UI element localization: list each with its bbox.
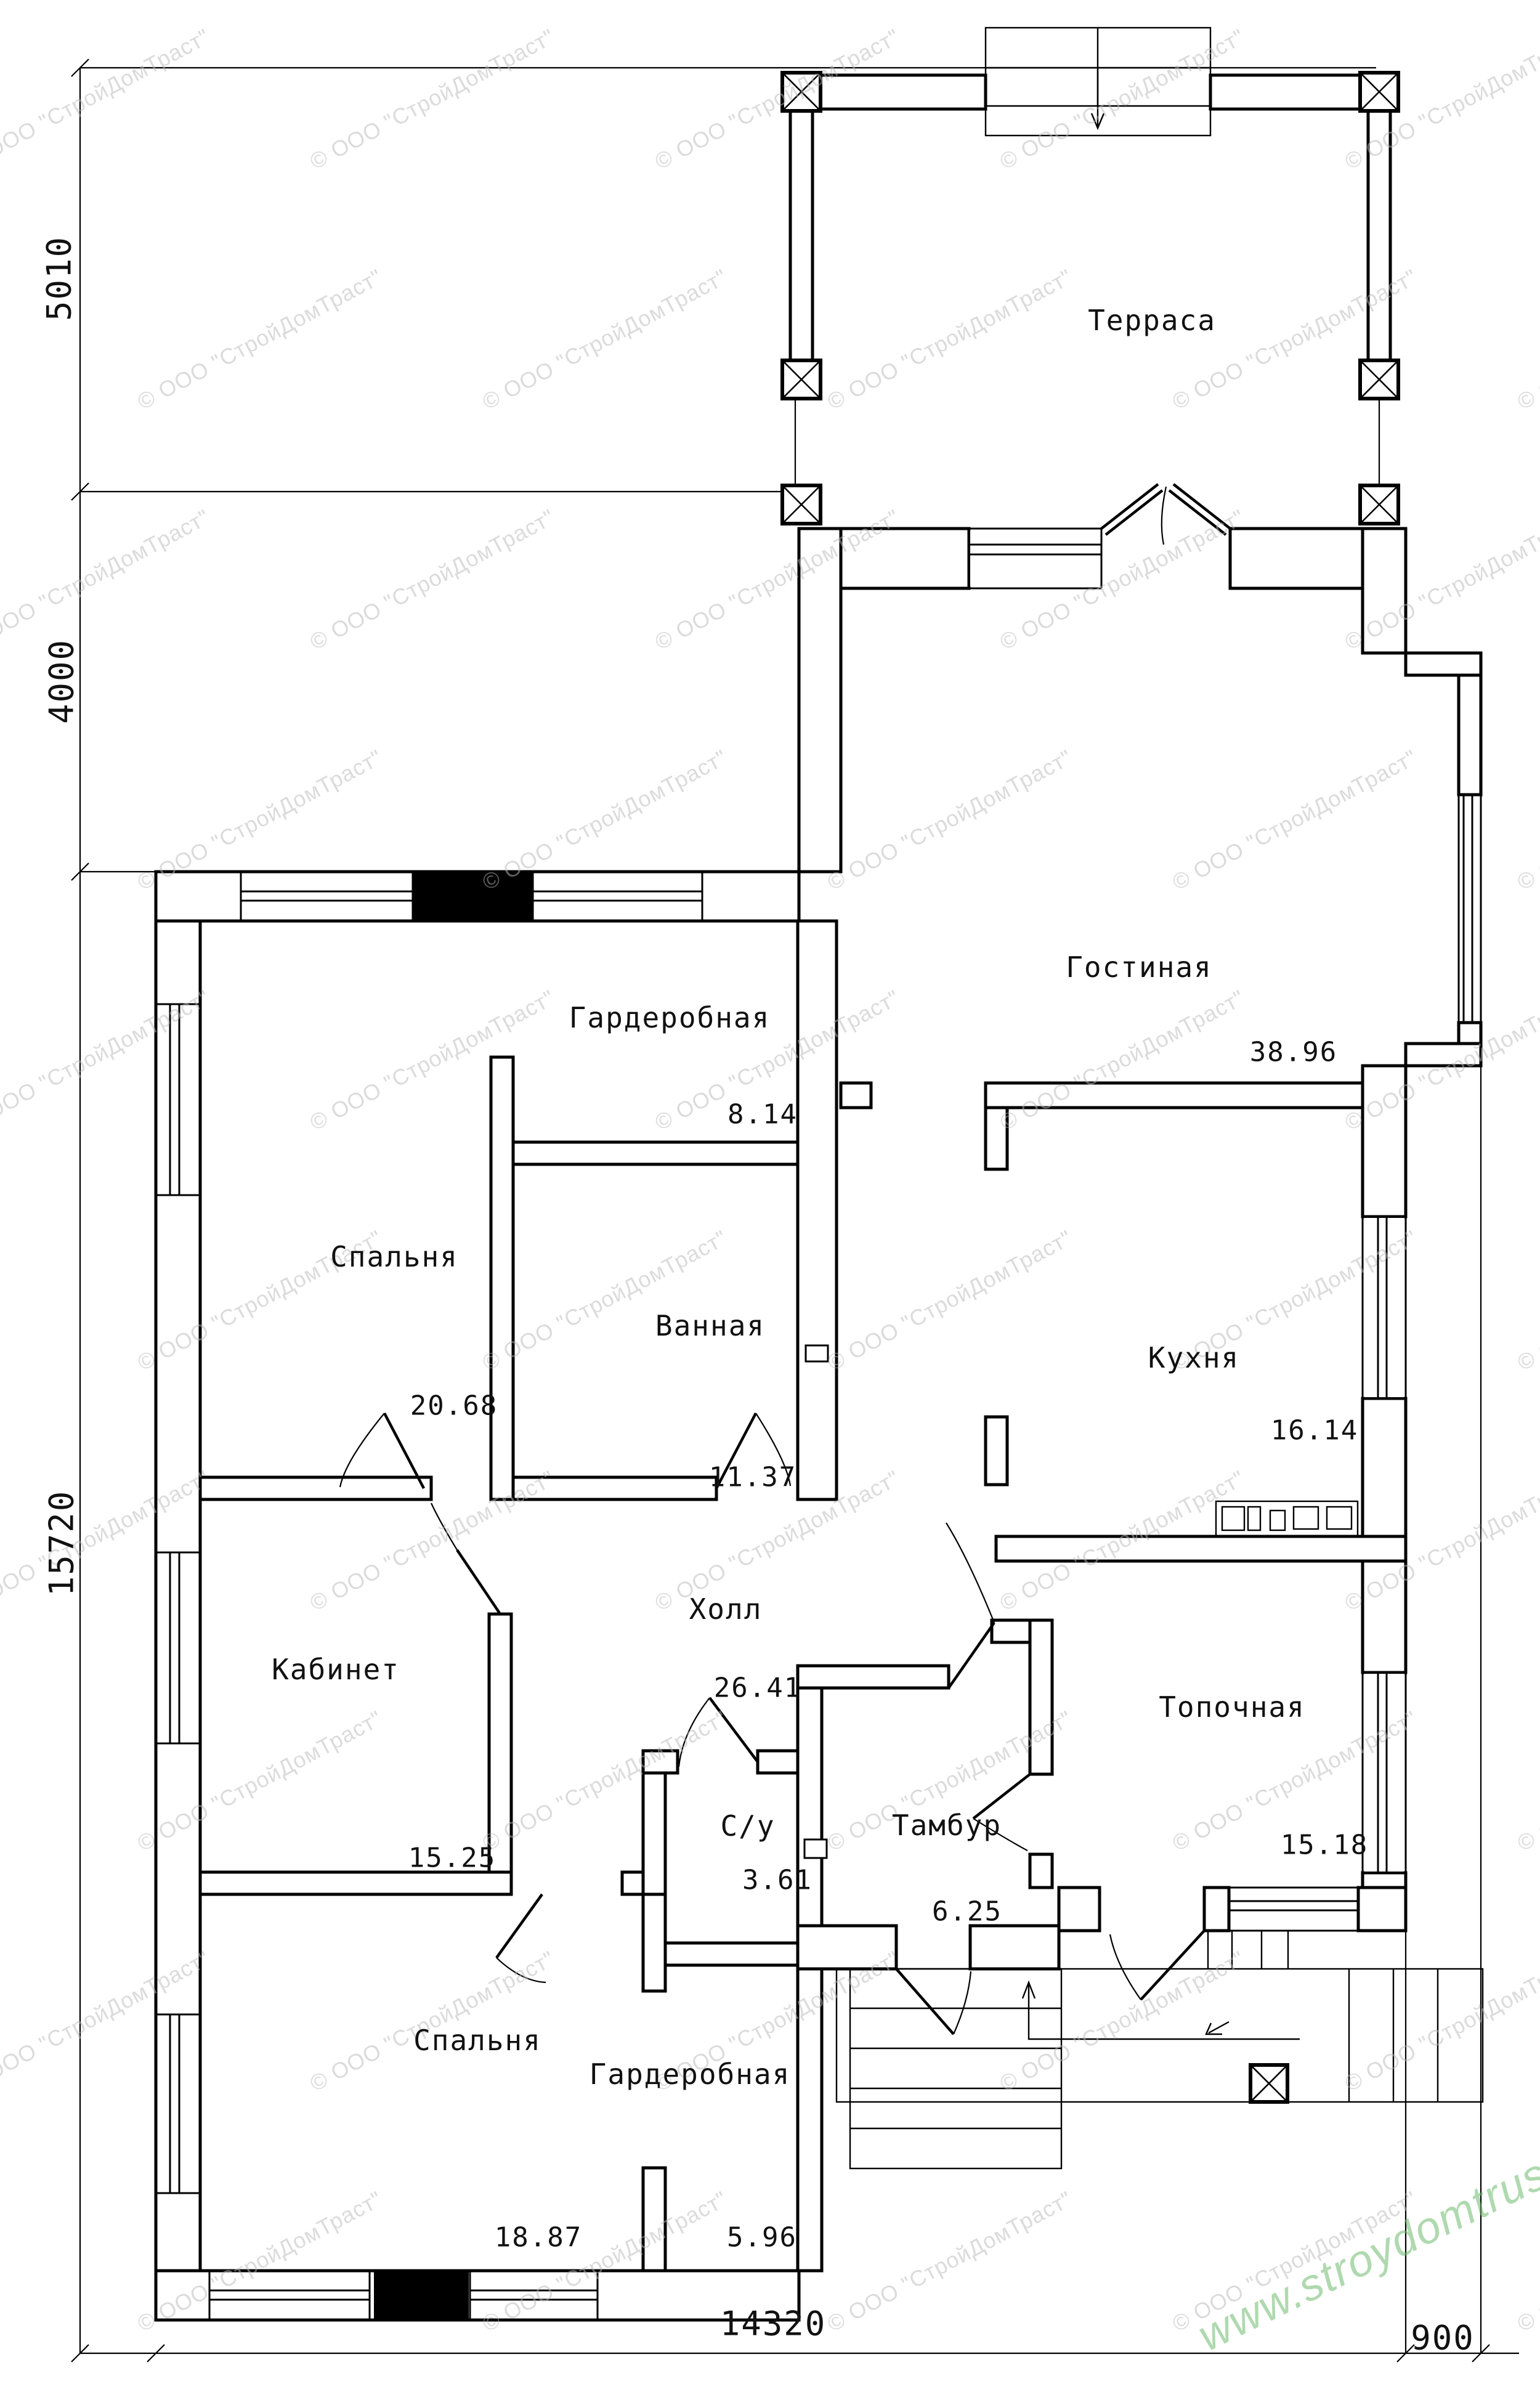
dim-side-offset: 4000	[43, 639, 81, 724]
terrace-steps	[986, 28, 1210, 136]
room-area-vestibule: 6.25	[932, 1896, 1002, 1928]
room-label-bedroom2: Спальня	[413, 2024, 541, 2057]
room-label-vestibule: Тамбур	[892, 1809, 1002, 1842]
dim-house-width: 14320	[720, 2305, 827, 2343]
entry-path-arrow	[1029, 1985, 1300, 2039]
terrace-columns	[782, 73, 1398, 524]
room-label-wc: С/у	[720, 1809, 775, 1843]
room-label-terrace: Терраса	[1088, 304, 1216, 337]
porch	[837, 1931, 1483, 2168]
room-area-hall: 26.41	[714, 1673, 801, 1704]
room-label-kitchen: Кухня	[1148, 1341, 1239, 1374]
dim-terrace-depth: 5010	[40, 236, 79, 321]
room-area-boiler: 15.18	[1281, 1830, 1368, 1861]
room-area-bath: 11.37	[709, 1462, 796, 1493]
room-area-wardrobe2: 5.96	[727, 2222, 797, 2253]
floor-plan-sheet: Терраса Гостиная 38.96 Гардеробная 8.14 …	[0, 0, 1540, 2389]
room-label-bath: Ванная	[655, 1309, 765, 1342]
dim-porch-offset: 900	[1411, 2319, 1475, 2358]
room-area-office: 15.25	[408, 1843, 496, 1874]
doors	[340, 484, 1230, 2034]
porch-column	[1250, 2065, 1287, 2102]
room-label-office: Кабинет	[272, 1653, 400, 1686]
room-area-wardrobe1: 8.14	[727, 1099, 798, 1130]
terrace-structure	[782, 28, 1398, 524]
room-area-living: 38.96	[1250, 1037, 1337, 1068]
room-label-hall: Холл	[689, 1592, 763, 1626]
room-label-boiler: Топочная	[1159, 1690, 1305, 1724]
room-label-wardrobe2: Гардеробная	[590, 2058, 791, 2091]
floor-plan-drawing	[0, 0, 1540, 2389]
kitchen-counter	[1216, 1501, 1358, 1536]
dim-house-depth: 15720	[43, 1490, 81, 1597]
room-area-wc: 3.61	[742, 1865, 813, 1896]
room-area-bedroom2: 18.87	[495, 2222, 582, 2253]
room-area-kitchen: 16.14	[1271, 1415, 1358, 1446]
room-label-wardrobe1: Гардеробная	[569, 1001, 771, 1034]
room-area-bedroom1: 20.68	[410, 1390, 498, 1422]
room-label-living: Гостиная	[1066, 951, 1212, 984]
room-label-bedroom1: Спальня	[330, 1240, 458, 1273]
